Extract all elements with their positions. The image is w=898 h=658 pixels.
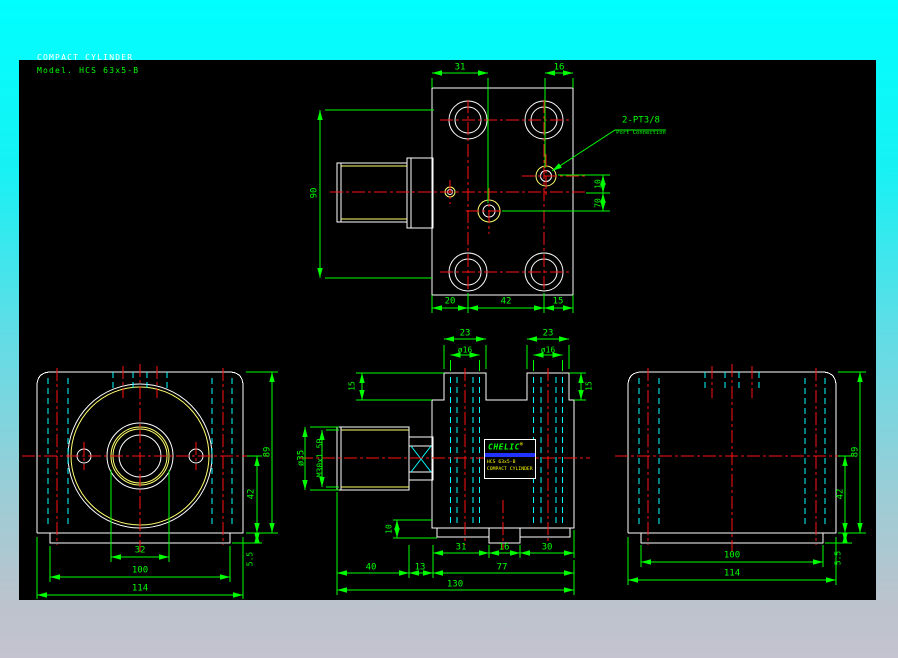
dim-back-89: 89 — [852, 447, 861, 458]
port-callout-subtext: Port Connection — [616, 130, 666, 136]
plate-product-text: COMPACT CYLINDER — [485, 466, 533, 473]
dim-top-15: 15 — [553, 298, 564, 307]
dim-top-42: 42 — [501, 298, 512, 307]
dim-side-13: 13 — [415, 564, 426, 573]
cad-viewer-window: COMPACT CYLINDER Model. HCS 63x5-B 31 16… — [0, 0, 898, 658]
drawing-canvas[interactable] — [0, 0, 898, 658]
brand-name-plate: CHELIC® HCS 63x5-B COMPACT CYLINDER — [484, 439, 536, 479]
port-callout-text: 2-PT3/8 — [622, 117, 660, 126]
dim-side-130: 130 — [447, 581, 463, 590]
drawing-title: COMPACT CYLINDER — [37, 53, 133, 62]
dim-side-23-left: 23 — [460, 330, 471, 339]
dim-back-5_5: 5.5 — [834, 551, 843, 565]
dim-side-d16-right: ø16 — [541, 346, 555, 355]
dim-side-16: 16 — [499, 544, 510, 553]
dim-top-31: 31 — [455, 64, 466, 73]
brand-name: CHELIC® — [485, 440, 535, 453]
dim-side-d35: ø35 — [298, 450, 307, 466]
dim-top-90: 90 — [311, 188, 320, 199]
dim-side-15-right: 15 — [585, 381, 594, 391]
dim-back-42: 42 — [837, 489, 846, 500]
dim-back-114: 114 — [724, 570, 740, 579]
dim-side-40: 40 — [366, 564, 377, 573]
drawing-sheet[interactable] — [19, 60, 876, 600]
dim-front-114: 114 — [132, 585, 148, 594]
dim-front-100: 100 — [132, 567, 148, 576]
dim-side-thread: M30x1.5P — [316, 439, 325, 478]
dim-top-10: 10 — [594, 179, 603, 189]
dim-side-23-right: 23 — [543, 330, 554, 339]
dim-top-20: 20 — [445, 298, 456, 307]
dim-front-32: 32 — [135, 547, 146, 556]
dim-top-16: 16 — [554, 64, 565, 73]
drawing-model: Model. HCS 63x5-B — [37, 66, 139, 75]
dim-top-70: 70 — [594, 198, 603, 208]
dim-back-100: 100 — [724, 552, 740, 561]
dim-side-d16-left: ø16 — [458, 346, 472, 355]
dim-side-31: 31 — [456, 544, 467, 553]
dim-front-5_5: 5.5 — [246, 552, 255, 566]
dim-front-42: 42 — [248, 489, 257, 500]
dim-side-77: 77 — [497, 564, 508, 573]
registered-mark: ® — [520, 442, 524, 448]
dim-side-30: 30 — [542, 544, 553, 553]
dim-side-15-left: 15 — [348, 381, 357, 391]
dim-front-89: 89 — [264, 447, 273, 458]
plate-model-text: HCS 63x5-B — [485, 459, 533, 466]
plate-blue-bar — [485, 453, 535, 457]
dim-side-10: 10 — [385, 524, 394, 534]
